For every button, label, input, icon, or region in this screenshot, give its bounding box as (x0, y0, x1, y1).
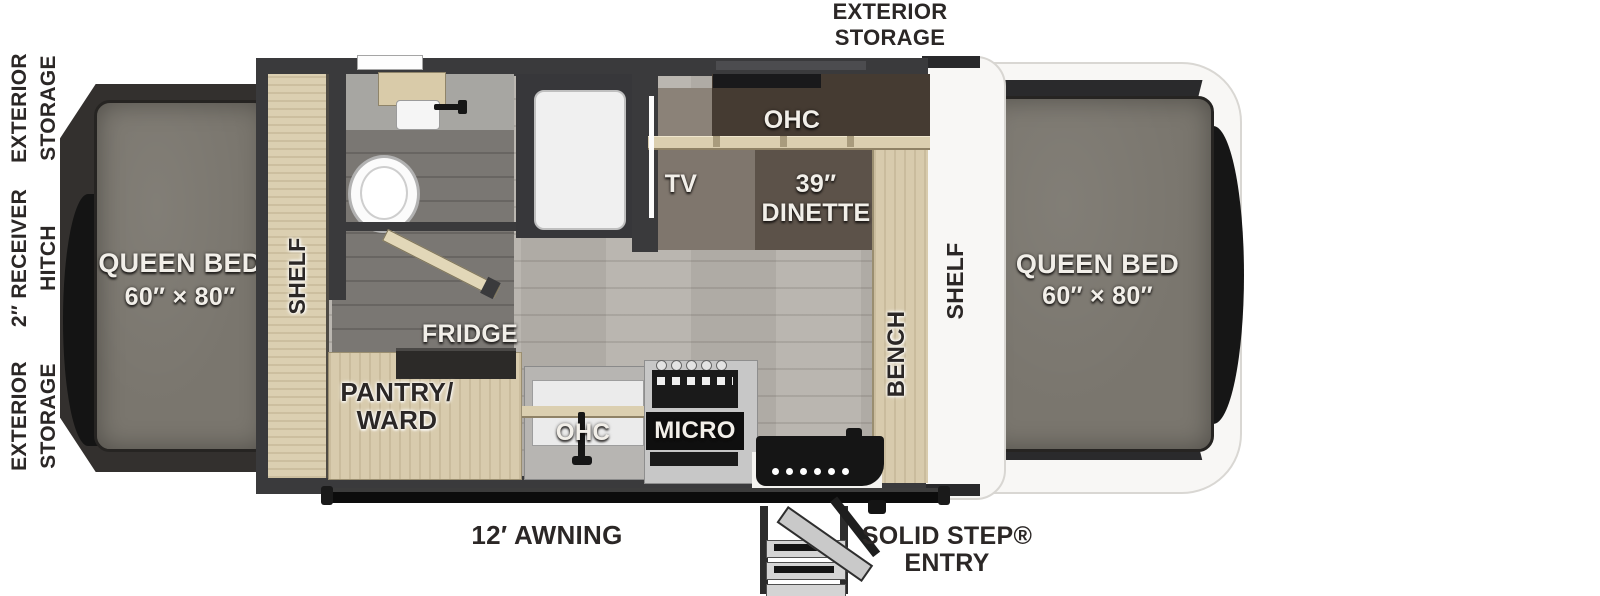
step-dot-5 (828, 468, 835, 475)
front-shelf-label: SHELF (285, 221, 309, 331)
kitchen-faucet-spout (572, 456, 592, 465)
exterior-storage-rear-label: EXTERIOR STORAGE (2, 341, 66, 491)
dinette-label: DINETTE (746, 199, 886, 227)
dinette-ohc-label: OHC (752, 106, 832, 134)
microwave-label: MICRO (646, 418, 744, 444)
step-dot-6 (842, 468, 849, 475)
range-burner-row (657, 377, 733, 385)
solid-step-entry-label: SOLID STEP® ENTRY (842, 522, 1052, 578)
dinette-ohc-vent (713, 74, 821, 88)
step-dot-2 (786, 468, 793, 475)
awning-rail-cap-right (938, 486, 950, 505)
fridge-label: FRIDGE (408, 320, 532, 348)
rear-queen-bed-size: 60″ × 80″ (1010, 281, 1185, 311)
toilet-seat (360, 166, 408, 220)
bathroom-faucet-handle (458, 100, 467, 114)
rear-cap-top-trim (922, 56, 980, 68)
shower-pan (534, 90, 626, 230)
step-dot-3 (800, 468, 807, 475)
receiver-hitch-label: 2″ RECEIVER HITCH (2, 183, 66, 333)
step-dot-4 (814, 468, 821, 475)
rail-notch-2 (780, 136, 787, 147)
bathroom-left-wall (329, 74, 346, 300)
entry-step-well (756, 436, 884, 486)
step-dot-1 (772, 468, 779, 475)
tv-screen (649, 96, 654, 218)
exterior-storage-front-label: EXTERIOR STORAGE (2, 33, 66, 183)
rear-queen-bed-label: QUEEN BED (1010, 249, 1185, 281)
rail-notch-1 (713, 136, 720, 147)
range-cooktop (652, 370, 738, 408)
step-3 (766, 584, 846, 596)
fridge-top (396, 348, 516, 379)
rear-shelf-label: SHELF (943, 226, 967, 336)
dinette-ohc-rail (648, 136, 930, 150)
front-queen-bed-label: QUEEN BED (95, 248, 265, 280)
exterior-storage-door (716, 61, 866, 70)
kitchen-ohc-label: OHC (543, 420, 623, 446)
awning-rail (328, 488, 948, 503)
rail-notch-3 (847, 136, 854, 147)
front-queen-bed-size: 60″ × 80″ (95, 282, 265, 312)
top-window (357, 55, 423, 70)
awning-label: 12′ AWNING (447, 521, 647, 551)
dinette-size-label: 39″ (746, 170, 886, 198)
tv-label: TV (659, 171, 703, 197)
pantry-label: PANTRY/ WARD (317, 377, 477, 435)
tv-wall (632, 74, 658, 252)
entry-step-handle (846, 428, 862, 440)
floorplan-canvas: QUEEN BED 60″ × 80″ QUEEN BED 60″ × 80″ … (0, 0, 1600, 596)
awning-rail-cap-left (321, 486, 333, 505)
range-grate (650, 452, 738, 466)
exterior-storage-top-label: EXTERIOR STORAGE (815, 0, 965, 50)
step-2-tread (774, 566, 834, 573)
awning-rail-bracket (868, 500, 886, 514)
kitchen-ohc-rail (522, 406, 652, 418)
bench-label: BENCH (884, 294, 910, 414)
bathroom-bottom-wall (346, 222, 516, 231)
